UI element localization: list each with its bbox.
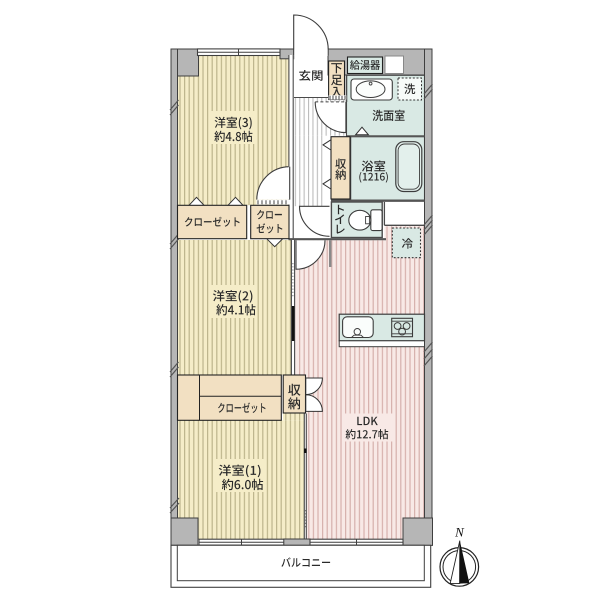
svg-text:N: N: [454, 525, 465, 540]
